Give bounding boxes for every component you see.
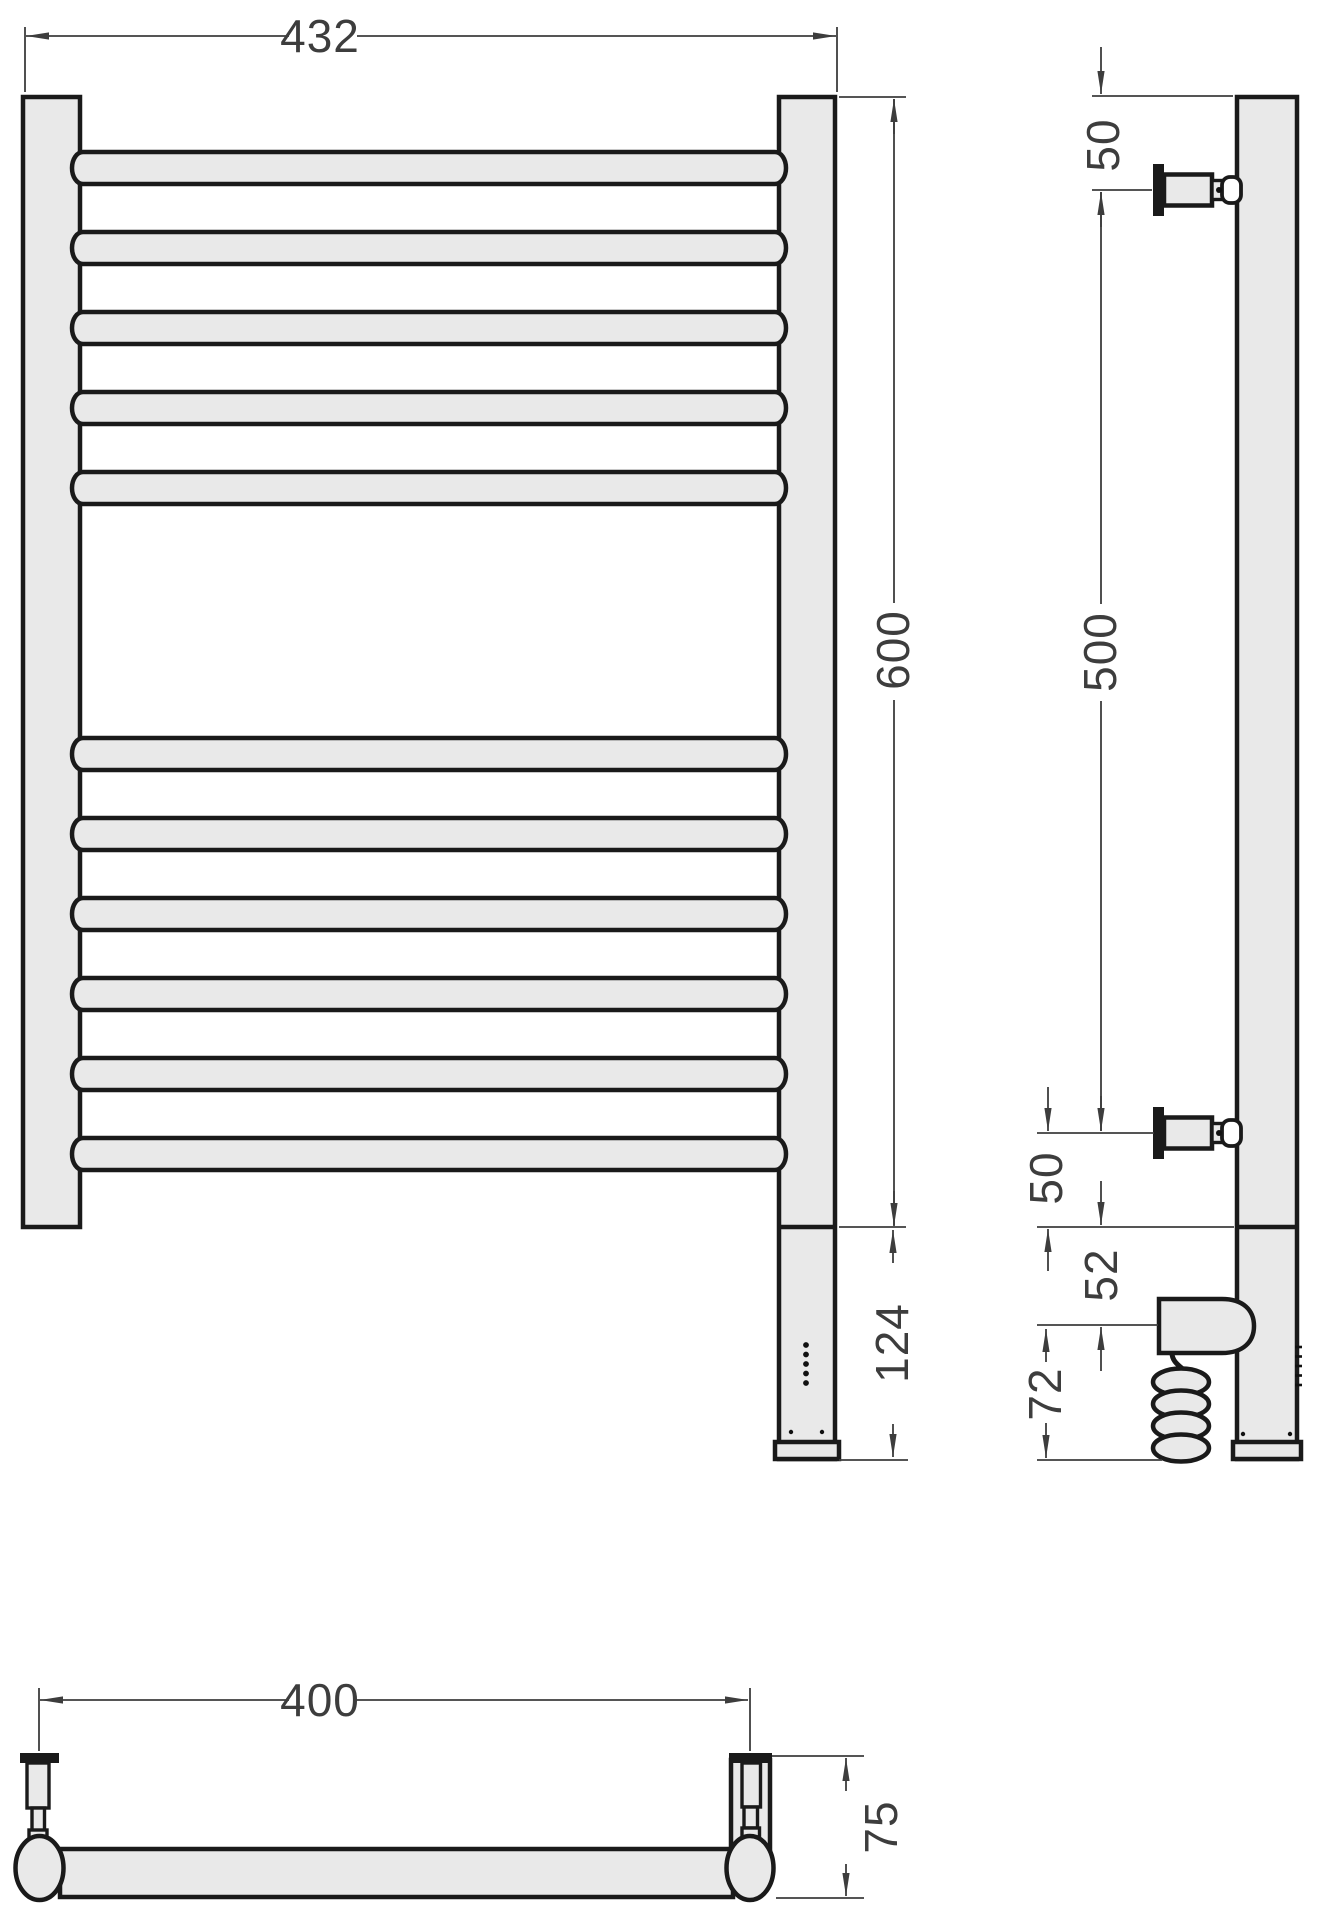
screw-dot (820, 1430, 824, 1434)
led-dot (803, 1371, 809, 1377)
coiled-cable (1153, 1353, 1209, 1462)
dim-plan-mount-distance: 400 (39, 1674, 750, 1751)
dim-side-heater-offset: 52 (1075, 1181, 1127, 1371)
led-dot (803, 1352, 809, 1358)
side-post-end-cap (1233, 1442, 1301, 1459)
front-left-post (23, 97, 80, 1227)
dim-label: 124 (866, 1303, 918, 1383)
rung (72, 1138, 786, 1170)
dim-front-width: 432 (25, 10, 837, 92)
technical-drawing: 432 600 124 50 (0, 0, 1319, 1920)
dim-front-bottom-section: 124 (839, 1230, 918, 1460)
rung (72, 978, 786, 1010)
wall-bracket-bottom (1153, 1107, 1241, 1159)
plan-left-post-top (16, 1836, 64, 1900)
wall-bracket-top (1153, 164, 1241, 216)
dim-label: 500 (1074, 612, 1126, 692)
screw-dot (1288, 1432, 1292, 1436)
dim-label: 50 (1077, 118, 1129, 171)
plan-right-post-top (727, 1836, 774, 1900)
cable-loop (1153, 1435, 1209, 1462)
dim-front-height: 600 (839, 97, 919, 1227)
bracket-knob (1222, 1120, 1241, 1146)
rung (72, 232, 786, 264)
bracket-pin-dot (1216, 1130, 1222, 1136)
rung (72, 738, 786, 770)
bracket-neck (744, 1807, 758, 1828)
rung (72, 392, 786, 424)
plan-view (16, 1753, 774, 1900)
front-right-post (779, 97, 835, 1459)
rung (72, 312, 786, 344)
bracket-body (1164, 175, 1212, 206)
dim-label: 432 (280, 10, 360, 62)
rung (72, 1058, 786, 1090)
rung (72, 152, 786, 184)
front-view (23, 97, 839, 1459)
dim-plan-depth: 75 (772, 1756, 907, 1898)
bracket-body (27, 1763, 49, 1808)
bracket-body (742, 1763, 761, 1807)
dim-side-top-offset: 50 (1077, 47, 1129, 172)
dim-side-heater-bottom: 72 (1019, 1329, 1071, 1458)
dim-side-bottom-offset: 50 (1020, 1087, 1072, 1271)
dim-label: 600 (867, 610, 919, 690)
screw-dot (1241, 1432, 1245, 1436)
dim-side-bracket-span: 500 (1074, 192, 1126, 1131)
heating-element (1159, 1299, 1254, 1353)
bracket-body (1164, 1118, 1212, 1149)
dim-label: 400 (280, 1674, 360, 1726)
led-dot (803, 1380, 809, 1386)
side-view (1153, 97, 1302, 1462)
led-dot (803, 1361, 809, 1367)
screw-dot (789, 1430, 793, 1434)
dim-label: 50 (1020, 1151, 1072, 1204)
dim-label: 52 (1075, 1248, 1127, 1301)
bracket-knob (1222, 177, 1241, 203)
dim-label: 72 (1019, 1367, 1071, 1420)
side-post (1237, 97, 1297, 1459)
bracket-pin-dot (1216, 187, 1222, 193)
plan-top-rung (60, 1849, 733, 1897)
rung (72, 472, 786, 504)
dimensions: 432 600 124 50 (25, 10, 1234, 1898)
dim-label: 75 (855, 1800, 907, 1853)
plan-right-bracket (727, 1753, 774, 1900)
rung (72, 898, 786, 930)
front-post-end-cap (775, 1442, 839, 1459)
led-dot (803, 1342, 809, 1348)
drawing-canvas: 432 600 124 50 (0, 0, 1319, 1920)
rung (72, 818, 786, 850)
plan-left-bracket (16, 1753, 64, 1900)
